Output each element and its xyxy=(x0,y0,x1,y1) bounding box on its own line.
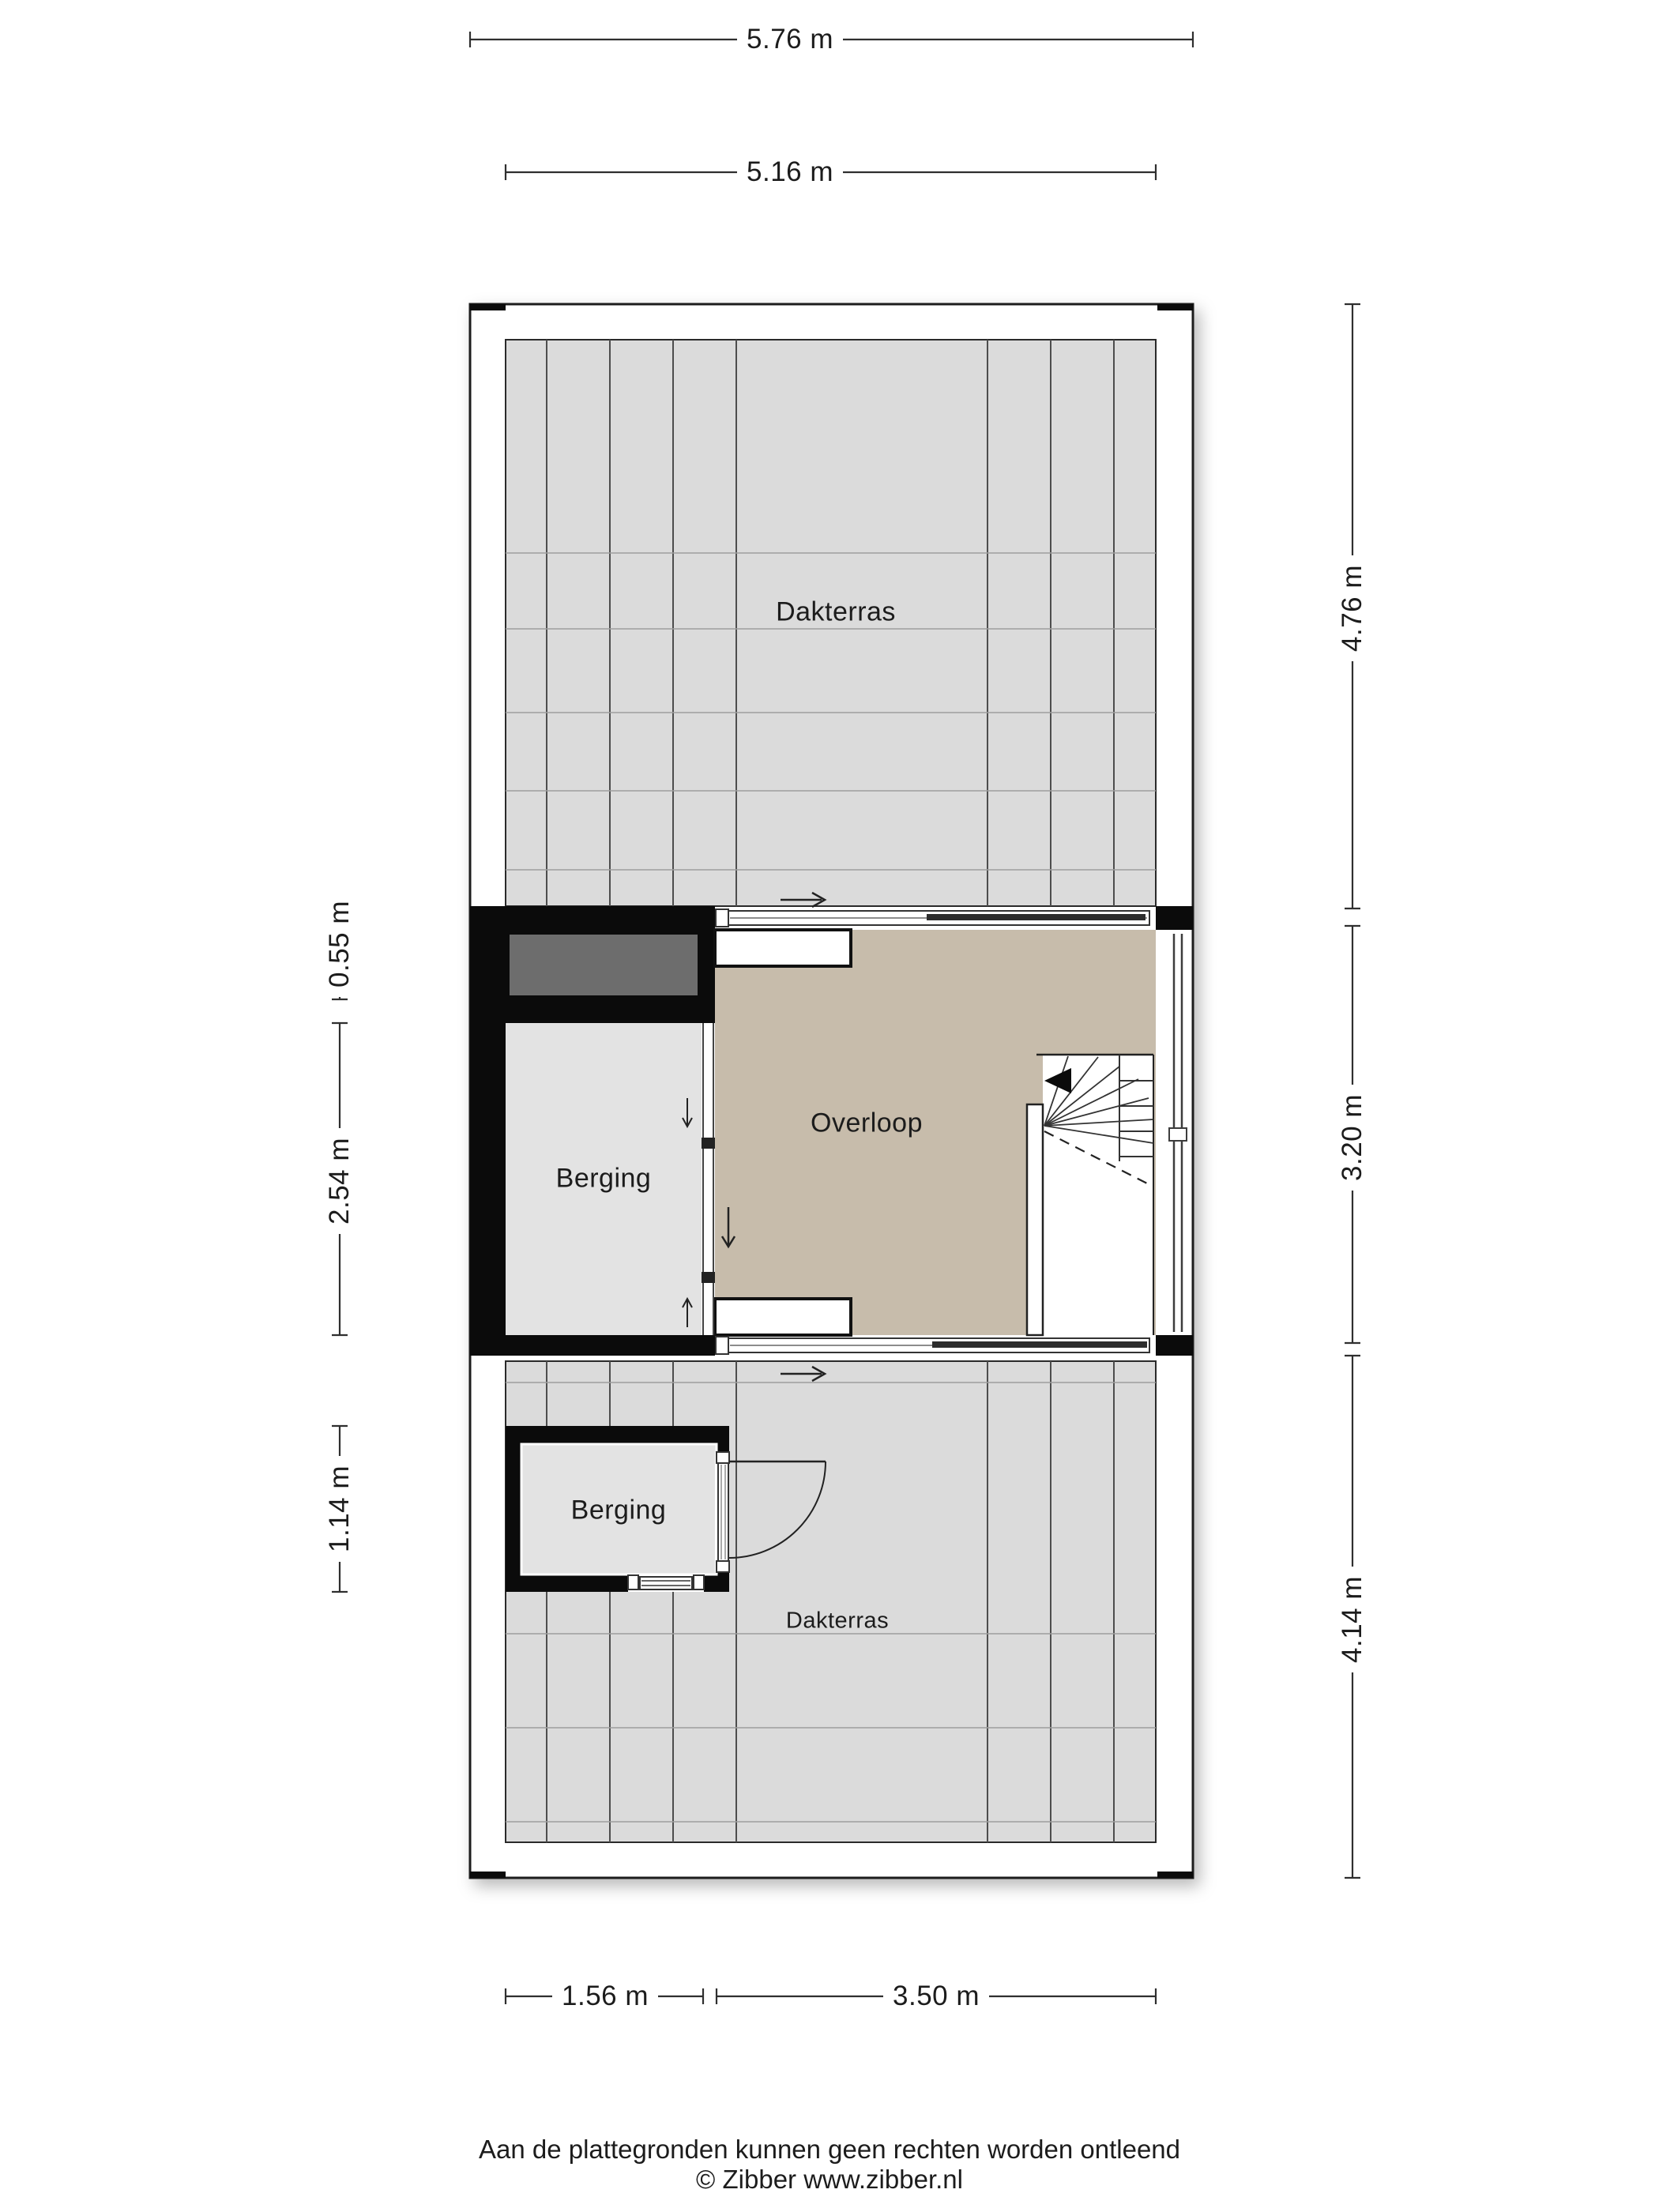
dim-right-top: 4.76 m xyxy=(1335,555,1370,661)
dim-right-middle: 3.20 m xyxy=(1335,1085,1370,1191)
room-label-berging-middle: Berging xyxy=(556,1164,652,1194)
stair-stringer-wall xyxy=(1027,1104,1043,1335)
dim-bottom-left: 1.56 m xyxy=(552,1979,658,2014)
floorplan-page: 5.76 m 5.16 m 4.76 m 3.20 m 4.14 m 0.55 … xyxy=(0,0,1659,2212)
dim-left-top: 0.55 m xyxy=(322,891,357,997)
niche-dark-space xyxy=(507,932,700,998)
footer-credit: © Zibber www.zibber.nl xyxy=(696,2165,963,2195)
room-label-dakterras-bottom: Dakterras xyxy=(786,1608,889,1635)
room-label-dakterras-top: Dakterras xyxy=(776,597,896,628)
dim-bottom-right: 3.50 m xyxy=(883,1979,989,2014)
dim-right-bottom: 4.14 m xyxy=(1335,1567,1370,1672)
room-label-overloop: Overloop xyxy=(811,1108,923,1139)
dim-top-outer: 5.76 m xyxy=(737,22,843,57)
floorplan-drawing xyxy=(0,0,1659,2212)
stairs xyxy=(1027,1055,1153,1335)
vent-grille xyxy=(628,1574,704,1592)
sliding-door-track-bottom xyxy=(716,1337,1149,1354)
dim-top-inner: 5.16 m xyxy=(737,155,843,190)
room-label-berging-lower: Berging xyxy=(571,1495,667,1526)
dim-left-bottom: 1.14 m xyxy=(322,1456,357,1562)
sliding-door-track-top xyxy=(716,909,1149,927)
dim-left-middle: 2.54 m xyxy=(322,1128,357,1234)
footer-disclaimer: Aan de plattegronden kunnen geen rechten… xyxy=(479,2135,1180,2165)
